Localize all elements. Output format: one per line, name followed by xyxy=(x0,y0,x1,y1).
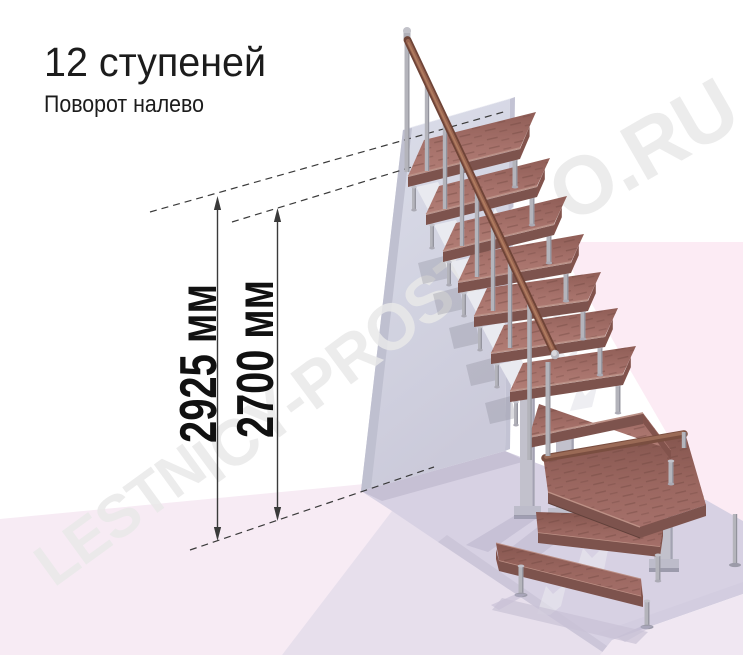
svg-text:12 ступеней: 12 ступеней xyxy=(44,39,266,85)
svg-text:Поворот налево: Поворот налево xyxy=(44,91,204,118)
svg-text:2925 мм: 2925 мм xyxy=(170,284,228,443)
svg-text:2700 мм: 2700 мм xyxy=(227,280,285,438)
